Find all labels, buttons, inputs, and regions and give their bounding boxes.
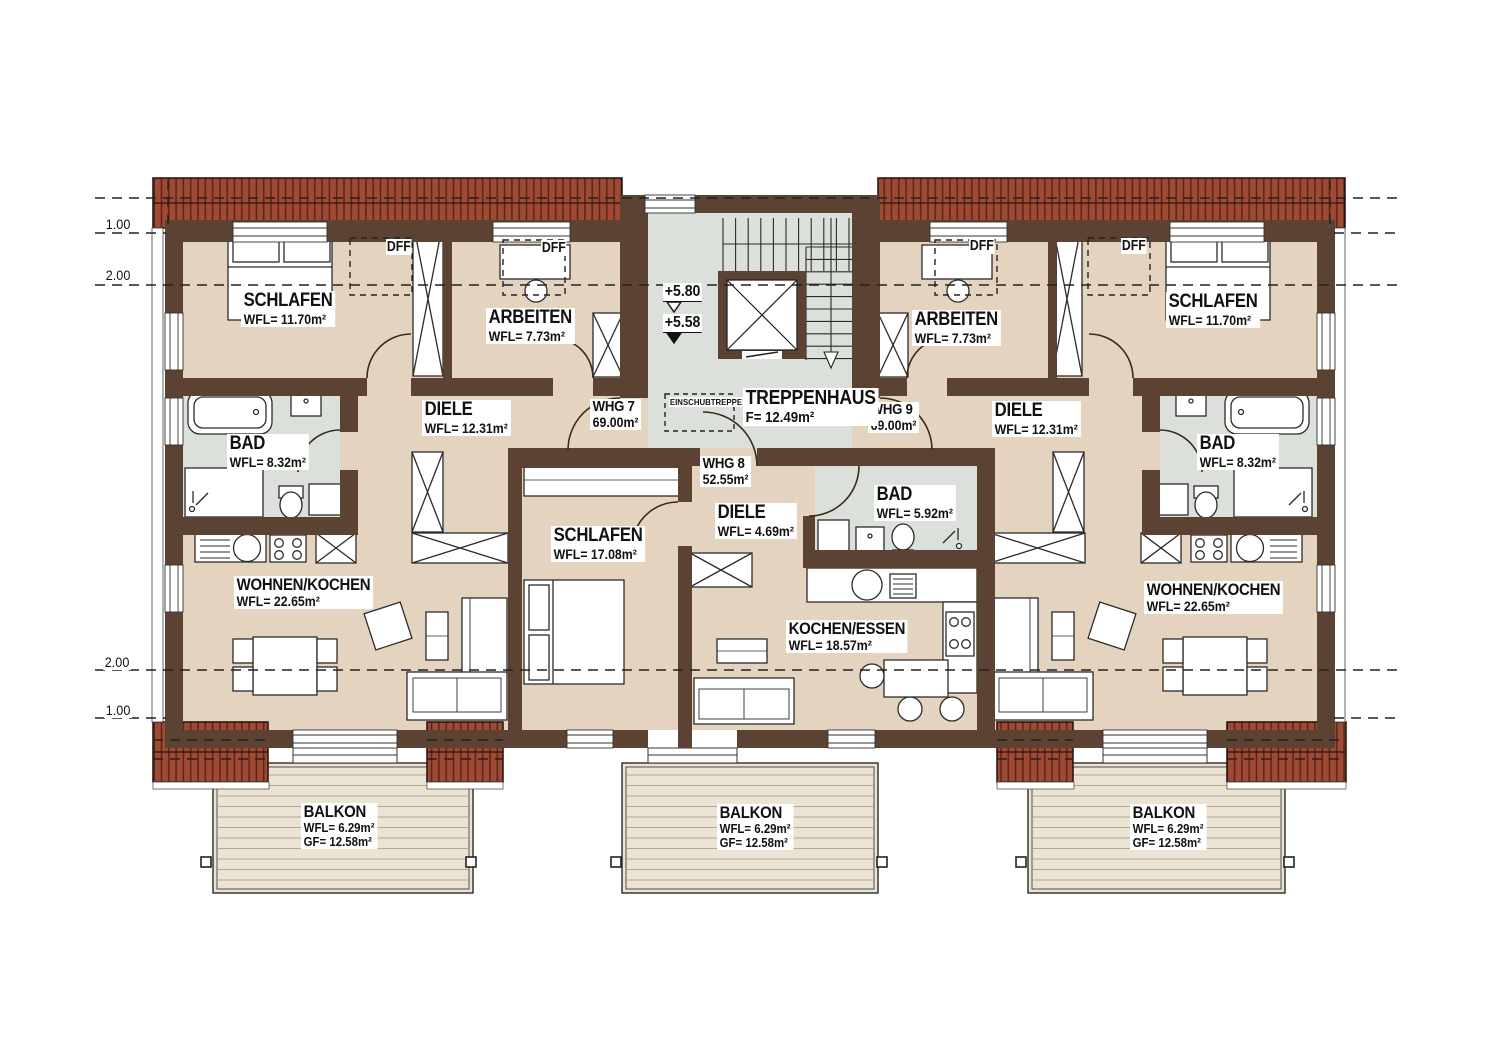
kitchen-whg7	[195, 533, 356, 563]
apartment-label-whg7: WHG 7 69.00m²	[590, 399, 641, 430]
window	[493, 222, 570, 242]
skylight-label-4: DFF	[1121, 238, 1147, 254]
eave-right	[1334, 228, 1345, 722]
dimension-bottom-1: 1.00	[104, 702, 132, 718]
window	[1103, 730, 1207, 748]
skylight-label-1: DFF	[386, 239, 412, 255]
stairwell-label: TREPPENHAUS F= 12.49m²	[743, 388, 878, 426]
window	[828, 730, 875, 748]
window	[293, 730, 397, 748]
apartment-label-whg8: WHG 8 52.55m²	[700, 456, 751, 487]
window	[1317, 398, 1335, 445]
balcony-label-1: BALKON WFL= 6.29m² GF= 12.58m²	[301, 803, 377, 849]
room-label-arbeiten-whg7: ARBEITEN WFL= 7.73m²	[486, 308, 575, 344]
room-label-bad-whg8: BAD WFL= 5.92m²	[874, 485, 956, 521]
room-label-diele-whg7: DIELE WFL= 12.31m²	[422, 400, 510, 436]
balcony-label-3: BALKON WFL= 6.29m² GF= 12.58m²	[1130, 804, 1206, 850]
window	[567, 730, 613, 748]
window	[165, 398, 183, 445]
skylight-label-2: DFF	[541, 240, 567, 256]
elevator	[718, 271, 806, 359]
window	[233, 222, 327, 242]
room-label-schlafen-whg9: SCHLAFEN WFL= 11.70m²	[1166, 292, 1260, 328]
room-label-diele-whg8: DIELE WFL= 4.69m²	[715, 503, 797, 539]
window	[165, 313, 183, 370]
window	[1170, 222, 1264, 242]
floor-plan: 1.00 2.00 2.00 1.00 DFF DFF DFF DFF SCHL…	[0, 0, 1497, 1058]
dimension-top-2: 2.00	[104, 267, 132, 283]
room-label-schlafen-whg7: SCHLAFEN WFL= 11.70m²	[241, 291, 335, 327]
dimension-top-1: 1.00	[104, 216, 132, 232]
kitchen-whg9	[1141, 533, 1302, 563]
room-label-diele-whg9: DIELE WFL= 12.31m²	[992, 401, 1080, 437]
balcony-label-2: BALKON WFL= 6.29m² GF= 12.58m²	[717, 804, 793, 850]
level-label-upper: +5.80	[663, 283, 702, 302]
window	[645, 195, 695, 213]
eave-left	[152, 228, 163, 722]
room-label-bad-whg7: BAD WFL= 8.32m²	[227, 434, 309, 470]
level-label-lower: +5.58	[663, 314, 702, 333]
insert-stair-label: EINSCHUBTREPPE	[669, 397, 743, 407]
room-label-wohnen-whg7: WOHNEN/KOCHEN WFL= 22.65m²	[234, 576, 373, 609]
room-label-wohnen-whg9: WOHNEN/KOCHEN WFL= 22.65m²	[1144, 581, 1283, 614]
dimension-bottom-2: 2.00	[103, 654, 131, 670]
room-label-schlafen-whg8: SCHLAFEN WFL= 17.08m²	[551, 526, 645, 562]
room-label-kochen-whg8: KOCHEN/ESSEN WFL= 18.57m²	[786, 620, 908, 653]
room-label-bad-whg9: BAD WFL= 8.32m²	[1197, 434, 1279, 470]
room-label-arbeiten-whg9: ARBEITEN WFL= 7.73m²	[912, 310, 1001, 346]
skylight-label-3: DFF	[969, 238, 995, 254]
window	[1317, 565, 1335, 612]
window	[1317, 313, 1335, 370]
window	[165, 565, 183, 612]
